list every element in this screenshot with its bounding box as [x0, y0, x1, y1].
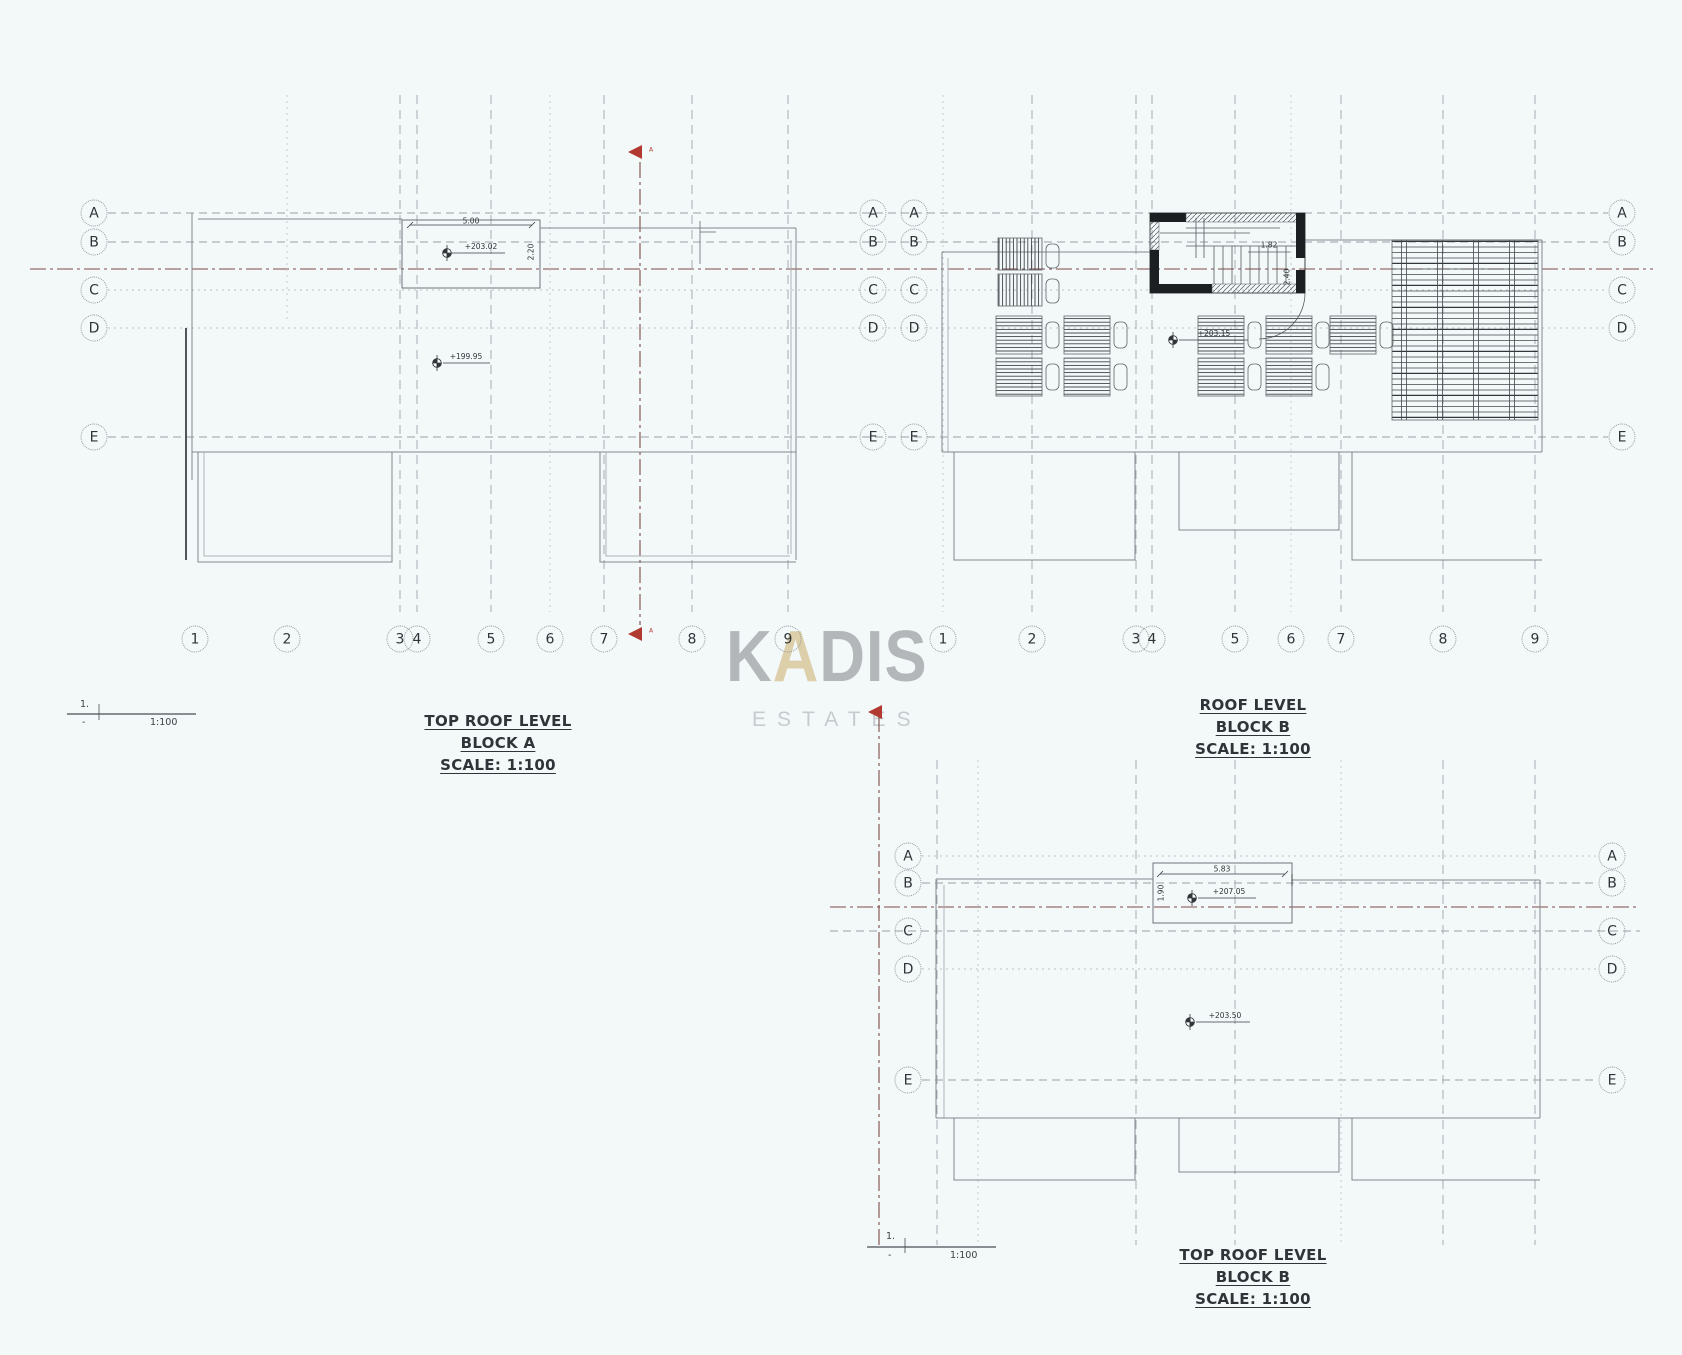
grid-rows-top	[108, 213, 1608, 437]
pergola-grid	[1392, 240, 1538, 420]
grid-bubble-row-E: E	[895, 1067, 922, 1094]
plan-c-title-line3: SCALE: 1:100	[1179, 1288, 1326, 1310]
plan-a-title-line3: SCALE: 1:100	[424, 754, 571, 776]
grid-bubble-col-8: 8	[679, 626, 706, 653]
section-label-bottom: A	[649, 628, 653, 635]
grid-bubble-row-B: B	[895, 870, 922, 897]
grid-bubble-row-B: B	[860, 229, 887, 256]
grid-bubble-row-D: D	[901, 315, 928, 342]
grid-bubble-col-6: 6	[537, 626, 564, 653]
grid-bubble-col-2: 2	[274, 626, 301, 653]
grid-bubble-col-5: 5	[478, 626, 505, 653]
grid-bubble-col-4: 4	[1139, 626, 1166, 653]
grid-bubble-row-E: E	[860, 424, 887, 451]
plan-c-title-line1: TOP ROOF LEVEL	[1179, 1244, 1326, 1266]
grid-bubble-col-8: 8	[1430, 626, 1457, 653]
grid-bubble-row-A: A	[81, 200, 108, 227]
plan-c-outline	[936, 863, 1540, 1180]
grid-bubble-col-7: 7	[1328, 626, 1355, 653]
grid-bubble-col-1: 1	[182, 626, 209, 653]
section-arrow-bottom	[628, 627, 642, 641]
grid-bubble-row-B: B	[81, 229, 108, 256]
plan-b-title: ROOF LEVEL BLOCK B SCALE: 1:100	[1195, 694, 1311, 760]
plan-c-scale-denominator: -	[888, 1250, 891, 1261]
grid-bubble-row-A: A	[895, 843, 922, 870]
plan-a-level-roof-top: +203.02	[465, 242, 498, 251]
scale-bars	[67, 704, 996, 1253]
grid-bubble-row-C: C	[1599, 918, 1626, 945]
plan-a-scale-numerator: 1.	[80, 699, 89, 710]
plan-a-scale-ratio: 1:100	[150, 717, 177, 728]
section-arrows	[628, 145, 882, 719]
plan-c-title: TOP ROOF LEVEL BLOCK B SCALE: 1:100	[1179, 1244, 1326, 1310]
plan-b-roof-furniture	[996, 238, 1538, 420]
drawing-sheet: KADIS ESTATES	[0, 0, 1682, 1355]
grid-bubble-row-D: D	[895, 956, 922, 983]
plan-b-stair-width-dim: 1.82	[1261, 241, 1278, 250]
plan-c-scale-numerator: 1.	[886, 1231, 895, 1242]
plan-a-title-line2: BLOCK A	[424, 732, 571, 754]
grid-bubble-row-D: D	[1609, 315, 1636, 342]
plan-b-title-line1: ROOF LEVEL	[1195, 694, 1311, 716]
grid-bubble-row-A: A	[860, 200, 887, 227]
plan-b-title-line3: SCALE: 1:100	[1195, 738, 1311, 760]
grid-bubble-col-2: 2	[1019, 626, 1046, 653]
grid-bubble-col-5: 5	[1222, 626, 1249, 653]
plan-c-level-roof-top: +207.05	[1213, 887, 1246, 896]
grid-bubble-row-C: C	[895, 918, 922, 945]
plan-b-level-roof: +203.15	[1198, 329, 1231, 338]
plan-a-stair-width-dim: 5.00	[463, 217, 480, 226]
grid-bubble-row-A: A	[1609, 200, 1636, 227]
plan-c-level-roof: +203.50	[1209, 1011, 1242, 1020]
grid-bubble-row-A: A	[901, 200, 928, 227]
grid-bubble-row-E: E	[1599, 1067, 1626, 1094]
section-arrow-plan-c	[868, 705, 882, 719]
grid-bubble-row-D: D	[1599, 956, 1626, 983]
grid-bubble-col-9: 9	[775, 626, 802, 653]
plan-a-title: TOP ROOF LEVEL BLOCK A SCALE: 1:100	[424, 710, 571, 776]
grid-bubble-col-1: 1	[930, 626, 957, 653]
section-arrow-top	[628, 145, 642, 159]
plan-c-stair-depth-dim: 1.90	[1157, 885, 1166, 902]
drawing-linework	[0, 0, 1682, 1355]
grid-bubble-col-6: 6	[1278, 626, 1305, 653]
grid-bubble-row-D: D	[860, 315, 887, 342]
plan-b-title-line2: BLOCK B	[1195, 716, 1311, 738]
grid-bubble-col-7: 7	[591, 626, 618, 653]
grid-bubble-row-D: D	[81, 315, 108, 342]
plan-c-stair-width-dim: 5.83	[1214, 865, 1231, 874]
grid-bubble-row-E: E	[1609, 424, 1636, 451]
grid-bubble-row-E: E	[901, 424, 928, 451]
plan-a-title-line1: TOP ROOF LEVEL	[424, 710, 571, 732]
grid-bubble-row-C: C	[860, 277, 887, 304]
section-label-top: A	[649, 147, 653, 154]
plan-b-stair-depth-dim: 2.40	[1283, 269, 1292, 286]
grid-bubble-row-B: B	[901, 229, 928, 256]
grid-bubble-row-A: A	[1599, 843, 1626, 870]
grid-cols-plan-a	[287, 95, 788, 612]
grid-bubble-col-9: 9	[1522, 626, 1549, 653]
grid-bubble-row-B: B	[1609, 229, 1636, 256]
plan-c-title-line2: BLOCK B	[1179, 1266, 1326, 1288]
grid-bubble-row-C: C	[901, 277, 928, 304]
plan-c-scale-ratio: 1:100	[950, 1250, 977, 1261]
grid-bubble-row-C: C	[81, 277, 108, 304]
grid-bubble-row-E: E	[81, 424, 108, 451]
plan-a-level-roof: +199.95	[450, 352, 483, 361]
grid-bubble-row-C: C	[1609, 277, 1636, 304]
plan-a-scale-denominator: -	[82, 717, 85, 728]
grid-bubble-row-B: B	[1599, 870, 1626, 897]
plan-a-stair-depth-dim: 2.20	[527, 244, 536, 261]
grid-bubble-col-4: 4	[404, 626, 431, 653]
